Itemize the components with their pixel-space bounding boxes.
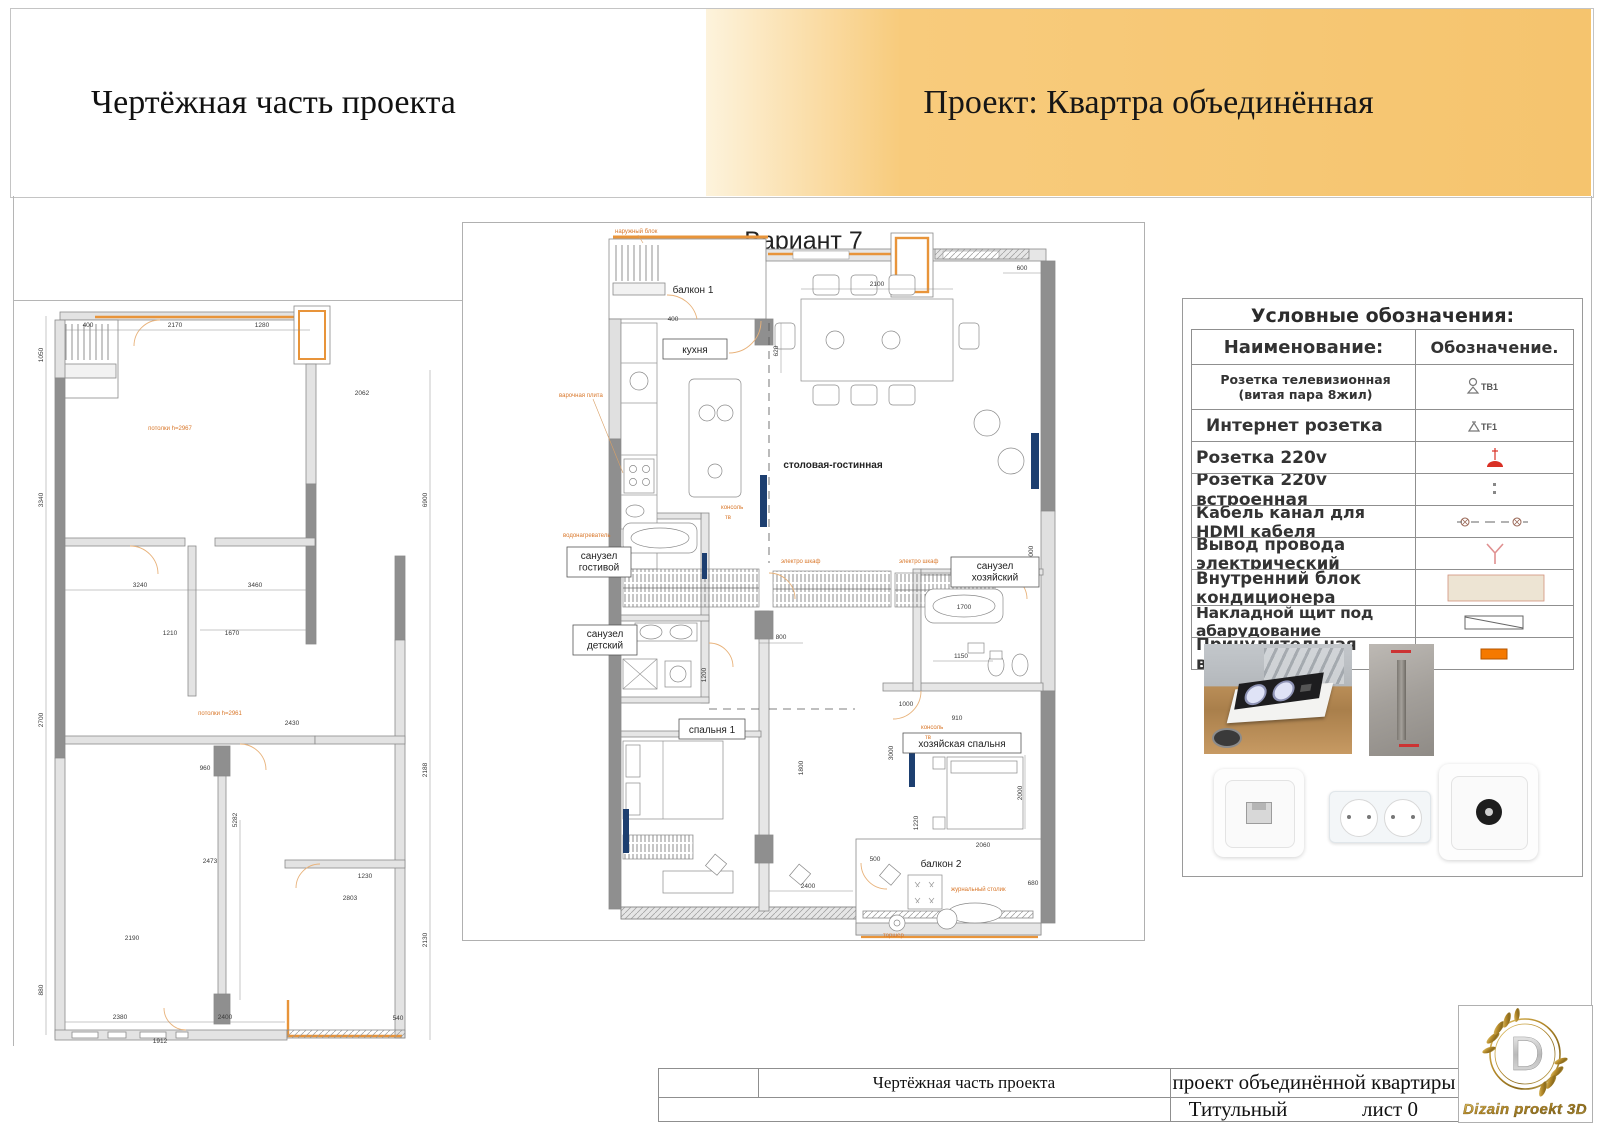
logo-letter: D: [1510, 1028, 1545, 1081]
tv-socket-image: [1439, 764, 1538, 860]
annotation: электро шкаф: [781, 559, 820, 565]
dimension-label: 1150: [954, 653, 968, 660]
dimension-label: 400: [668, 316, 679, 323]
room-label-bedroom-master: хозяйская спальня: [918, 739, 1005, 750]
logo-caption: Dizain proekt 3D: [1463, 1101, 1587, 1118]
legend-row-name: Кабель канал для HDMI кабеля: [1192, 506, 1416, 537]
logo: D Dizain proekt 3D: [1459, 1006, 1592, 1122]
usb-port: [1300, 683, 1312, 691]
dimension-label: 800: [776, 634, 787, 641]
surface-panel-symbol: [1416, 606, 1573, 637]
legend-col-symbol: Обозначение.: [1416, 330, 1573, 364]
center-floor-plan: 2100 600 620 800 400 1200 1000 1020 2400…: [463, 223, 1144, 940]
room-label-bath-kids: санузелдетский: [587, 629, 624, 652]
dimension-label: 2060: [976, 842, 991, 849]
center-plan-box: Вариант 7: [462, 222, 1145, 941]
title-block-line: [658, 1068, 659, 1121]
annotation: тв: [925, 735, 931, 741]
title-block-project: проект объединённой квартиры: [1170, 1068, 1458, 1097]
legend-header-row: Наименование: Обозначение.: [1192, 330, 1573, 364]
legend-row-ac-unit: Внутренний блок кондиционера: [1192, 569, 1573, 605]
dimension-label: 600: [1017, 265, 1028, 272]
legend-col-name: Наименование:: [1192, 330, 1416, 364]
hdmi-cable-symbol: [1416, 506, 1573, 537]
dimension-label: 2400: [218, 1014, 233, 1021]
dimension-label: 3240: [133, 582, 148, 589]
title-block-line: [658, 1097, 1458, 1098]
legend-row-panel-board: Накладной щит под абарудование: [1192, 605, 1573, 637]
annotation: консоль: [921, 725, 943, 731]
page-title: Чертёжная часть проекта: [91, 9, 456, 197]
header-band: Чертёжная часть проекта Проект: Квартра …: [10, 8, 1594, 198]
dimension-label: 1210: [163, 630, 178, 637]
schuko-socket: [1340, 799, 1378, 837]
dimension-label: 880: [38, 984, 45, 995]
legend-row-wire-outlet: Вывод провода электрический: [1192, 537, 1573, 569]
dimension-label: 910: [952, 715, 963, 722]
dimension-label: 2380: [113, 1014, 128, 1021]
dimension-label: 2430: [285, 720, 300, 727]
dimension-label: 1912: [153, 1038, 168, 1045]
legend-title: Условные обозначения:: [1183, 305, 1582, 327]
left-plan-dim-labels: 1050 2170 400 1280 3340 2700 1210 1670 2…: [38, 322, 429, 1045]
dimension-label: 1220: [913, 815, 920, 830]
room-label-bedroom1: спальня 1: [689, 725, 736, 736]
tv-socket-symbol: ТВ1: [1416, 365, 1573, 409]
annotation: водонагреватель: [563, 533, 610, 539]
dimension-label: 620: [773, 345, 780, 356]
dimension-label: 3460: [248, 582, 263, 589]
legend-table: Наименование: Обозначение. Розетка телев…: [1191, 329, 1574, 670]
dimension-label: 3000: [888, 745, 895, 760]
legend-panel: Условные обозначения: Наименование: Обоз…: [1182, 298, 1583, 877]
dimension-label: 680: [1028, 880, 1039, 887]
socket-220v-symbol: [1416, 442, 1573, 473]
cable-channel-strip: [1397, 660, 1406, 740]
annotation: варочная плита: [559, 393, 603, 399]
rj45-port: [1246, 802, 1272, 824]
project-banner: Проект: Квартра объединённая: [706, 9, 1591, 196]
dimension-label: 1700: [957, 604, 972, 611]
title-block-line: [658, 1121, 1592, 1122]
room-label-bath-guest: санузелгостивой: [579, 551, 620, 574]
annotation: журнальный столик: [951, 886, 1006, 893]
dimension-label: 2062: [355, 390, 370, 397]
photo-desk-socket: [1204, 644, 1352, 754]
project-title: Проект: Квартра объединённая: [706, 9, 1591, 196]
coax-connector: [1476, 799, 1502, 825]
legend-row-tv: Розетка телевизионная (витая пара 8жил) …: [1192, 364, 1573, 409]
annotation: тв: [725, 515, 731, 521]
room-label-living: столовая-гостинная: [783, 460, 883, 471]
dimension-label: 2190: [125, 935, 140, 942]
desk-grommet: [1212, 728, 1242, 748]
logo-box: D Dizain proekt 3D: [1458, 1005, 1593, 1123]
dimension-label: 3340: [38, 492, 45, 507]
room-label-kitchen: кухня: [682, 345, 707, 356]
left-floor-plan: 1050 2170 400 1280 3340 2700 1210 1670 2…: [10, 300, 462, 1045]
legend-row-socket220: Розетка 220v: [1192, 441, 1573, 473]
legend-row-name: Интернет розетка: [1192, 410, 1416, 441]
dimension-label: 1000: [899, 701, 914, 708]
photo-cable-channel: [1369, 644, 1434, 756]
ceiling-height-label: потолки h=2961: [198, 711, 242, 717]
room-label-balcony2: балкон 2: [921, 858, 962, 870]
dimension-label: 400: [83, 322, 94, 329]
legend-row-name: Вывод провода электрический: [1192, 538, 1416, 569]
legend-row-socket220-built-in: Розетка 220v встроенная: [1192, 473, 1573, 505]
dimension-label: 2803: [343, 895, 358, 902]
red-mark: [1399, 744, 1419, 747]
dimension-label: 5282: [232, 812, 239, 827]
dimension-label: 1230: [358, 873, 373, 880]
title-block-part: Чертёжная часть проекта: [758, 1068, 1170, 1097]
legend-row-name: Накладной щит под абарудование: [1192, 606, 1416, 637]
socket-220v-built-in-symbol: [1416, 474, 1573, 505]
legend-row-internet: Интернет розетка TF1: [1192, 409, 1573, 441]
dimension-label: 2100: [870, 281, 885, 288]
dimension-label: 960: [200, 765, 211, 772]
sheet-border-right: [1591, 196, 1592, 1122]
tv-socket-tag: ТВ1: [1481, 382, 1498, 392]
double-socket-image: [1329, 791, 1431, 843]
legend-row-name: Розетка 220v: [1192, 442, 1416, 473]
dimension-label: 1050: [38, 347, 45, 362]
internet-socket-tag: TF1: [1481, 422, 1497, 432]
dimension-label: 2400: [801, 883, 816, 890]
dimension-label: 2473: [203, 858, 218, 865]
round-socket: [1271, 679, 1297, 703]
red-mark: [1391, 650, 1411, 653]
dimension-label: 6900: [422, 492, 429, 507]
drawing-sheet: { "header": { "left_title": "Чертёжная ч…: [0, 0, 1600, 1130]
dimension-label: 2700: [38, 712, 45, 727]
annotation: электро шкаф: [899, 559, 938, 565]
legend-row-hdmi: Кабель канал для HDMI кабеля: [1192, 505, 1573, 537]
dimension-label: 2188: [422, 762, 429, 777]
dimension-label: 500: [870, 856, 881, 863]
dimension-label: 1670: [225, 630, 240, 637]
dimension-label: 2130: [422, 932, 429, 947]
annotation: консоль: [721, 505, 743, 511]
schuko-socket: [1384, 799, 1422, 837]
dimension-label: 1280: [255, 322, 270, 329]
rj45-socket-image: [1214, 769, 1304, 857]
forced-exhaust-symbol: [1416, 638, 1573, 669]
ac-indoor-unit-symbol: [1416, 570, 1573, 605]
annotation: наружный блок: [615, 228, 658, 235]
left-plan-dim-lines: [46, 316, 430, 1040]
dimension-label: 2170: [168, 322, 183, 329]
legend-row-name: Внутренний блок кондиционера: [1192, 570, 1416, 605]
electric-wire-outlet-symbol: [1416, 538, 1573, 569]
legend-row-name: Розетка телевизионная (витая пара 8жил): [1192, 365, 1416, 409]
room-label-balcony1: балкон 1: [673, 284, 714, 296]
ceiling-height-label: потолки h=2967: [148, 426, 192, 432]
dimension-label: 1200: [701, 667, 708, 682]
center-plan-furniture: [621, 275, 1028, 931]
dimension-label: 540: [393, 1015, 404, 1022]
dimension-label: 1800: [798, 760, 805, 775]
legend-row-name: Розетка 220v встроенная: [1192, 474, 1416, 505]
title-block-sheet-type: Титульный: [1178, 1097, 1298, 1121]
title-block-sheet-number: лист 0: [1340, 1097, 1440, 1121]
internet-socket-symbol: TF1: [1416, 410, 1573, 441]
round-socket: [1243, 682, 1269, 706]
dimension-label: 2000: [1017, 785, 1024, 800]
room-label-bath-master: санузелхозяйский: [972, 561, 1018, 584]
annotation: торшер: [883, 933, 905, 939]
left-plan-walls: [55, 306, 405, 1040]
